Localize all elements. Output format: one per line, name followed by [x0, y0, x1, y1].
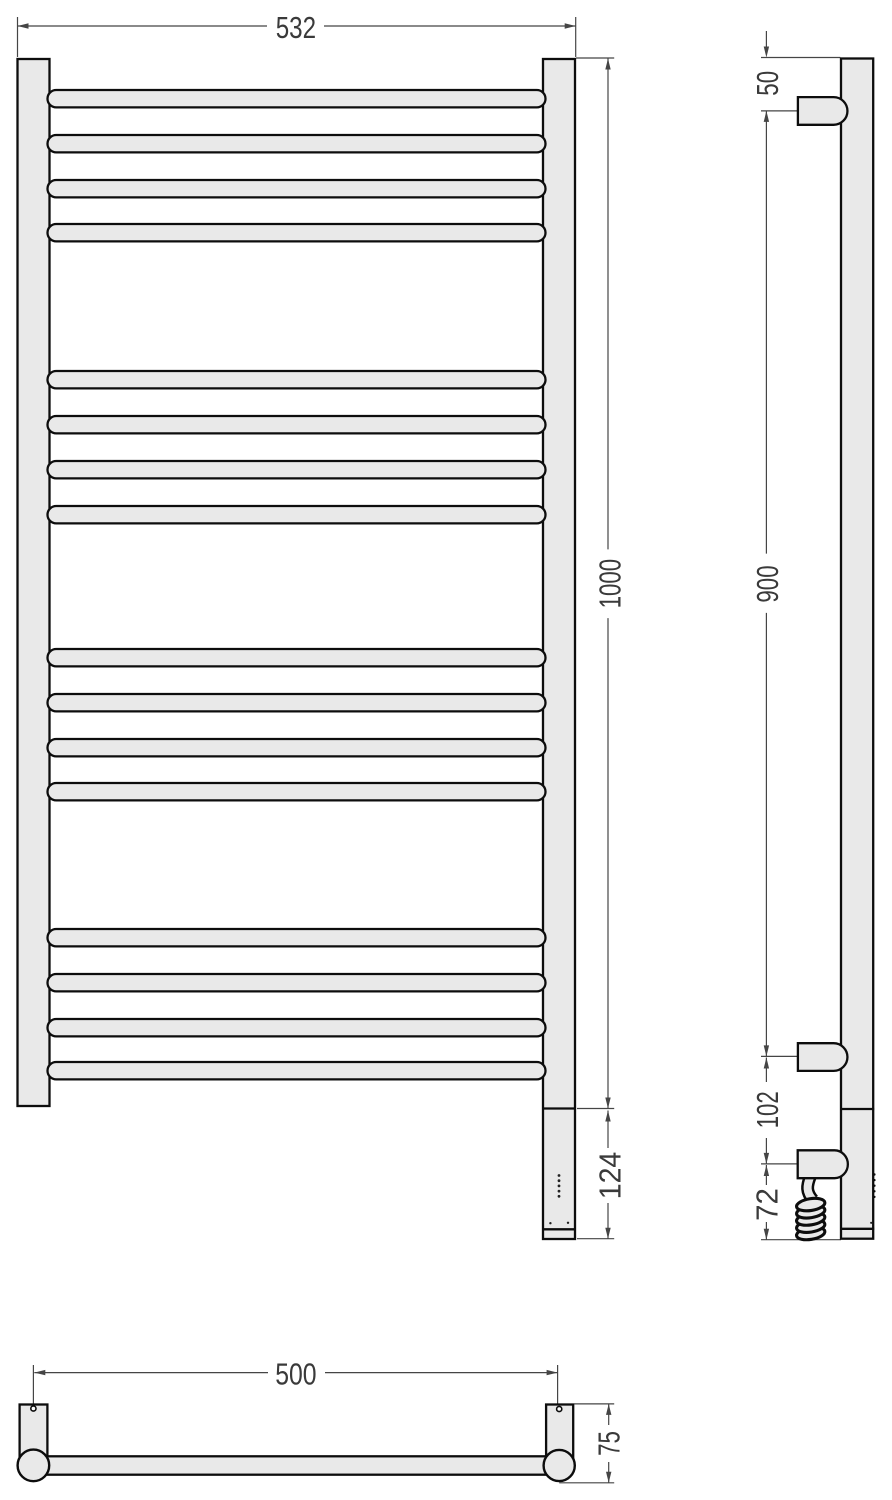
svg-text:75: 75: [592, 1431, 626, 1456]
svg-text:72: 72: [751, 1188, 785, 1221]
svg-text:500: 500: [275, 1357, 316, 1391]
svg-text:1000: 1000: [593, 559, 627, 609]
svg-text:124: 124: [593, 1152, 627, 1200]
svg-text:50: 50: [751, 71, 785, 96]
svg-text:900: 900: [751, 565, 785, 602]
svg-text:532: 532: [276, 10, 316, 45]
svg-text:102: 102: [751, 1091, 785, 1128]
